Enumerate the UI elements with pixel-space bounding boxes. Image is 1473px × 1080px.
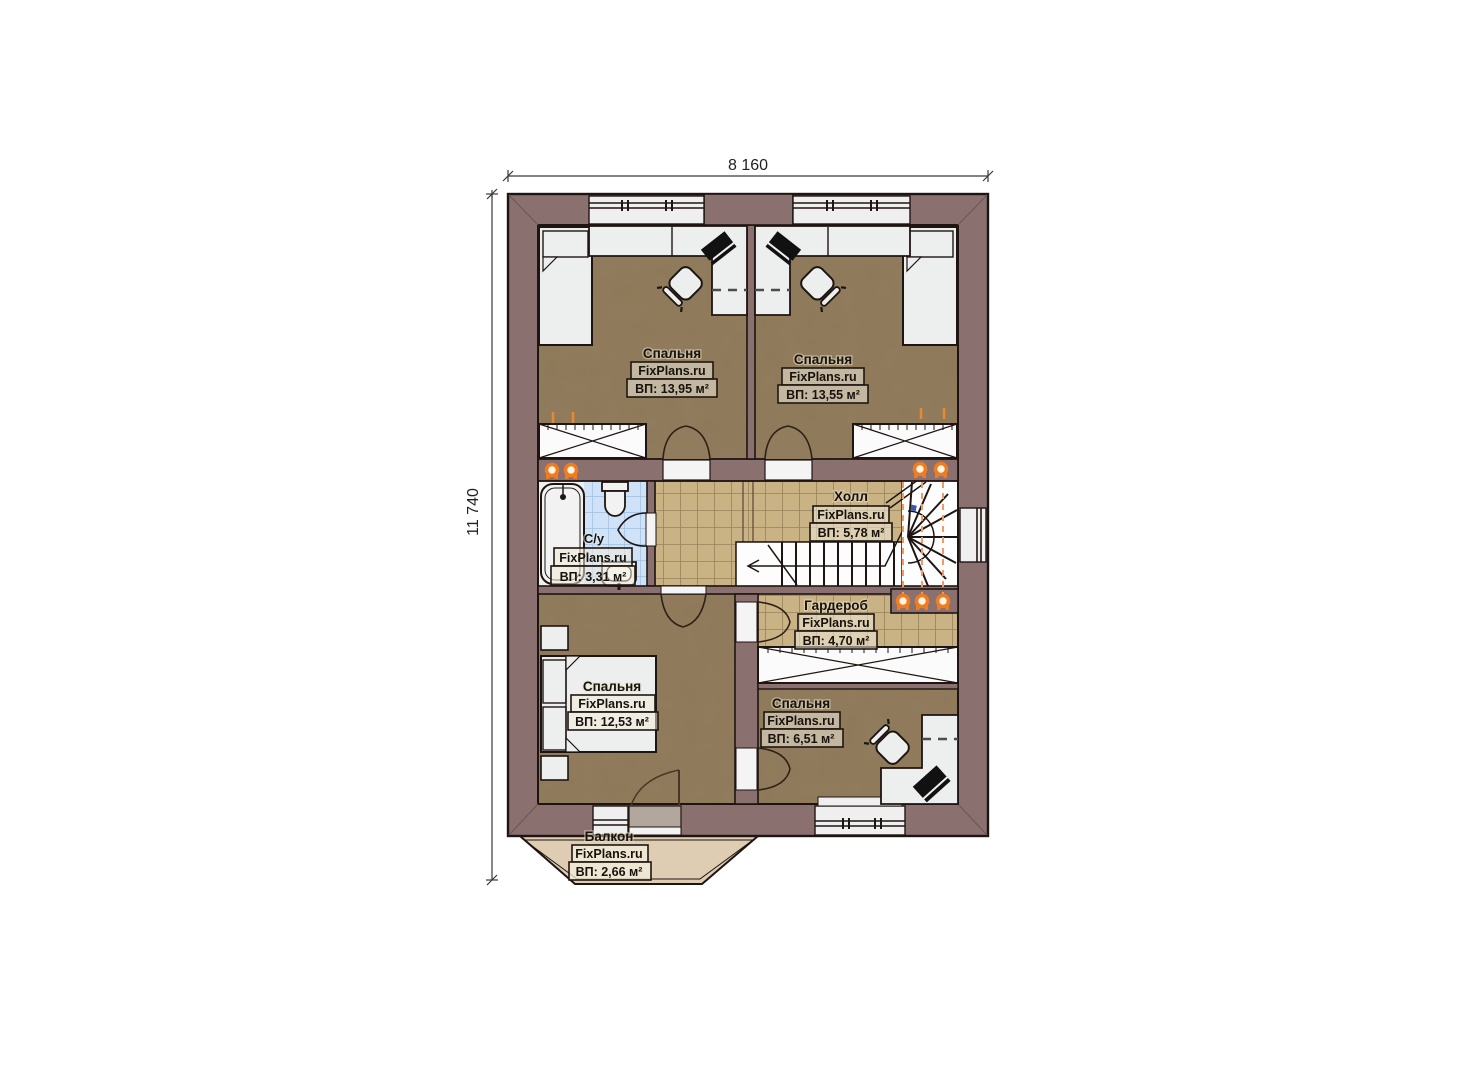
svg-text:FixPlans.ru: FixPlans.ru [559, 551, 626, 565]
svg-text:FixPlans.ru: FixPlans.ru [638, 364, 705, 378]
svg-text:ВП: 13,55 м²: ВП: 13,55 м² [786, 388, 860, 402]
svg-text:FixPlans.ru: FixPlans.ru [817, 508, 884, 522]
svg-text:ВП: 6,51 м²: ВП: 6,51 м² [768, 732, 835, 746]
svg-text:Спальня: Спальня [583, 679, 641, 694]
svg-text:FixPlans.ru: FixPlans.ru [789, 370, 856, 384]
svg-text:Спальня: Спальня [772, 696, 830, 711]
svg-text:Холл: Холл [834, 489, 868, 504]
svg-text:Балкон: Балкон [585, 829, 634, 844]
svg-text:ВП: 4,70 м²: ВП: 4,70 м² [803, 634, 870, 648]
svg-text:ВП: 12,53 м²: ВП: 12,53 м² [575, 715, 649, 729]
svg-text:FixPlans.ru: FixPlans.ru [767, 714, 834, 728]
svg-text:ВП: 13,95 м²: ВП: 13,95 м² [635, 382, 709, 396]
svg-text:Спальня: Спальня [643, 346, 701, 361]
svg-text:8 160: 8 160 [728, 157, 768, 174]
svg-text:FixPlans.ru: FixPlans.ru [578, 697, 645, 711]
svg-text:ВП: 5,78 м²: ВП: 5,78 м² [818, 526, 885, 540]
svg-text:Гардероб: Гардероб [804, 598, 868, 613]
svg-text:Спальня: Спальня [794, 352, 852, 367]
svg-text:ВП: 3,31 м²: ВП: 3,31 м² [560, 570, 627, 584]
svg-text:11 740: 11 740 [465, 488, 482, 536]
svg-text:FixPlans.ru: FixPlans.ru [575, 847, 642, 861]
svg-text:ВП: 2,66 м²: ВП: 2,66 м² [576, 865, 643, 879]
svg-text:С/у: С/у [584, 531, 605, 546]
svg-text:FixPlans.ru: FixPlans.ru [802, 616, 869, 630]
